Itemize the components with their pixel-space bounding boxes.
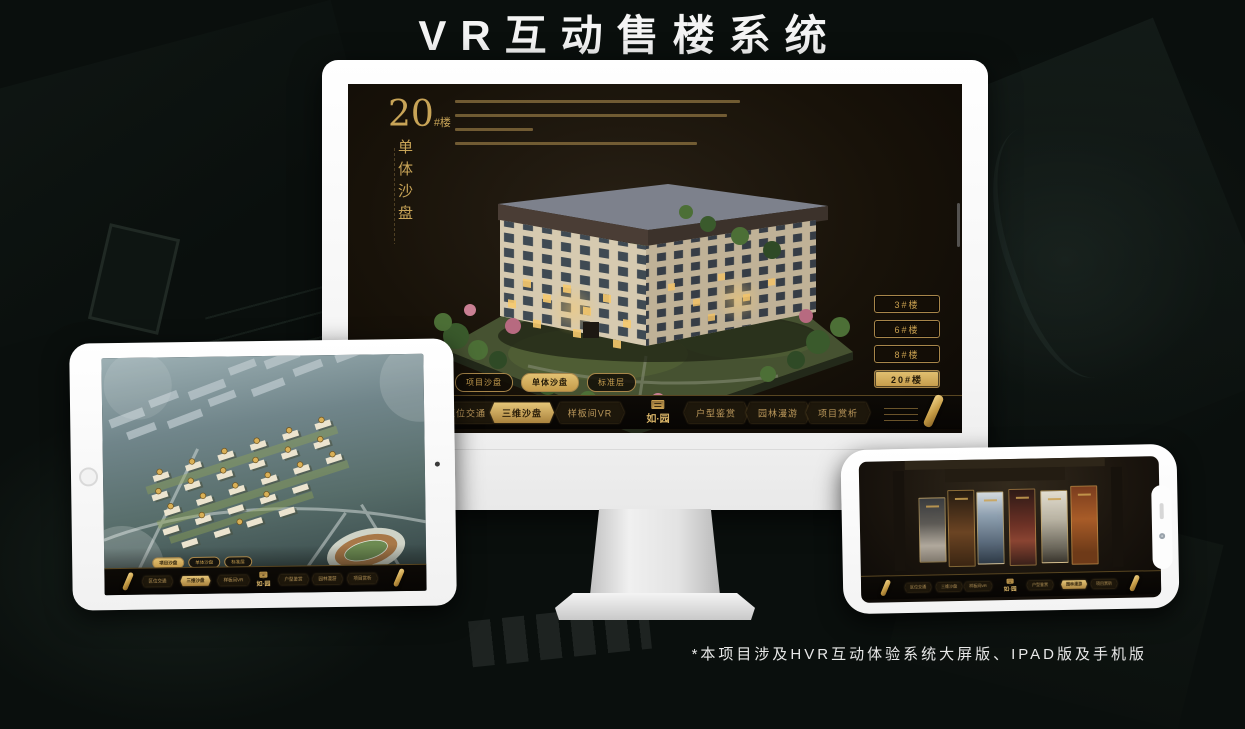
- pillar-silhouette: [1111, 467, 1124, 567]
- marketing-poster: { "page": { "title": "VR互动售楼系统", "footno…: [0, 0, 1245, 666]
- nav-item-garden-roam[interactable]: 园林漫游: [746, 402, 810, 423]
- scroll-handle-right[interactable]: [393, 568, 405, 587]
- scrollbar[interactable]: [957, 203, 960, 247]
- monitor-stand: [590, 509, 720, 595]
- scroll-handle-left[interactable]: [880, 579, 891, 597]
- footnote: *本项目涉及HVR互动体验系统大屏版、IPAD版及手机版: [692, 643, 1147, 664]
- camera-dot: [435, 462, 440, 467]
- phone-nav-bar: 区位交通 三维沙盘 样板间VR 如·园 户型鉴赏 园林漫游 项目赏析: [861, 570, 1161, 600]
- seal-icon: [259, 572, 267, 578]
- brand-logo: 如·园: [256, 572, 270, 588]
- gallery-panel-4[interactable]: [1008, 489, 1036, 567]
- gallery-panel-2[interactable]: [947, 490, 975, 568]
- phone-device: 区位交通 三维沙盘 样板间VR 如·园 户型鉴赏 园林漫游 项目赏析: [840, 444, 1179, 614]
- phone-screen: 区位交通 三维沙盘 样板间VR 如·园 户型鉴赏 园林漫游 项目赏析: [859, 456, 1162, 603]
- monitor-sub-tabs: 项目沙盘 单体沙盘 标准层: [455, 373, 636, 392]
- entrance-eave-silhouette: [905, 457, 1105, 470]
- nav-item-floorplans[interactable]: 户型鉴赏: [684, 402, 748, 423]
- floor-button-3[interactable]: 3#楼: [874, 295, 940, 313]
- nav-item-project-gallery[interactable]: 项目赏析: [1091, 579, 1117, 588]
- tablet-screen: 项目沙盘 单体沙盘 标准层 区位交通 三维沙盘 样板间VR 如·园 户型鉴赏 园…: [101, 354, 426, 595]
- nav-item-project-gallery[interactable]: 项目赏析: [806, 402, 870, 423]
- nav-item-3d-sandbox[interactable]: 三维沙盘: [490, 402, 554, 423]
- pillar-silhouette: [893, 471, 906, 571]
- background-river-curve: [964, 107, 1166, 392]
- gallery-panel-6[interactable]: [1070, 485, 1099, 565]
- nav-item-showroom-vr[interactable]: 样板间VR: [964, 581, 992, 591]
- nav-item-project-gallery[interactable]: 项目赏析: [347, 573, 377, 583]
- page-title: VR互动售楼系统: [0, 2, 1245, 63]
- floor-button-20[interactable]: 20#楼: [874, 370, 940, 388]
- home-button: [79, 467, 98, 486]
- nav-item-floorplans[interactable]: 户型鉴赏: [1027, 580, 1053, 589]
- scroll-handle-right[interactable]: [1129, 574, 1140, 592]
- scroll-handle-left[interactable]: [122, 572, 134, 591]
- scroll-handle-icon[interactable]: [884, 403, 940, 425]
- floor-button-6[interactable]: 6#楼: [874, 320, 940, 338]
- gallery-panel-5[interactable]: [1040, 490, 1068, 564]
- floor-button-group: 3#楼 6#楼 8#楼 20#楼: [874, 295, 940, 395]
- speaker-slit: [1160, 503, 1164, 519]
- tablet-nav-bar: 区位交通 三维沙盘 样板间VR 如·园 户型鉴赏 园林漫游 项目赏析: [104, 564, 426, 595]
- nav-item-showroom-vr[interactable]: 样板间VR: [218, 575, 250, 585]
- tab-single-sandbox[interactable]: 单体沙盘: [521, 373, 579, 392]
- nav-item-3d-sandbox[interactable]: 三维沙盘: [936, 582, 962, 591]
- brand-logo: 如·园: [646, 400, 669, 425]
- nav-item-location[interactable]: 区位交通: [142, 576, 172, 586]
- front-camera-dot: [1159, 533, 1165, 539]
- nav-item-showroom-vr[interactable]: 样板间VR: [556, 402, 625, 423]
- background-picture-frame: [88, 223, 180, 335]
- nav-item-3d-sandbox[interactable]: 三维沙盘: [180, 576, 210, 586]
- tab-standard-floor[interactable]: 标准层: [587, 373, 636, 392]
- seal-icon: [1006, 578, 1013, 583]
- brand-logo: 如·园: [1004, 578, 1017, 592]
- phone-notch: [1151, 485, 1173, 569]
- tablet-device: 项目沙盘 单体沙盘 标准层 区位交通 三维沙盘 样板间VR 如·园 户型鉴赏 园…: [69, 338, 457, 610]
- tab-project-sandbox[interactable]: 项目沙盘: [455, 373, 513, 392]
- aerial-masterplan-render: [101, 354, 426, 595]
- seal-icon: [652, 400, 665, 409]
- nav-item-garden-roam[interactable]: 园林漫游: [1061, 580, 1087, 589]
- nav-item-location[interactable]: 区位交通: [905, 583, 931, 592]
- nav-item-floorplans[interactable]: 户型鉴赏: [278, 574, 308, 584]
- gallery-panel-3[interactable]: [976, 491, 1004, 565]
- monitor-stand-base: [555, 593, 755, 620]
- nav-item-garden-roam[interactable]: 园林漫游: [312, 574, 342, 584]
- floor-button-8[interactable]: 8#楼: [874, 345, 940, 363]
- gallery-panel-1[interactable]: [918, 497, 946, 563]
